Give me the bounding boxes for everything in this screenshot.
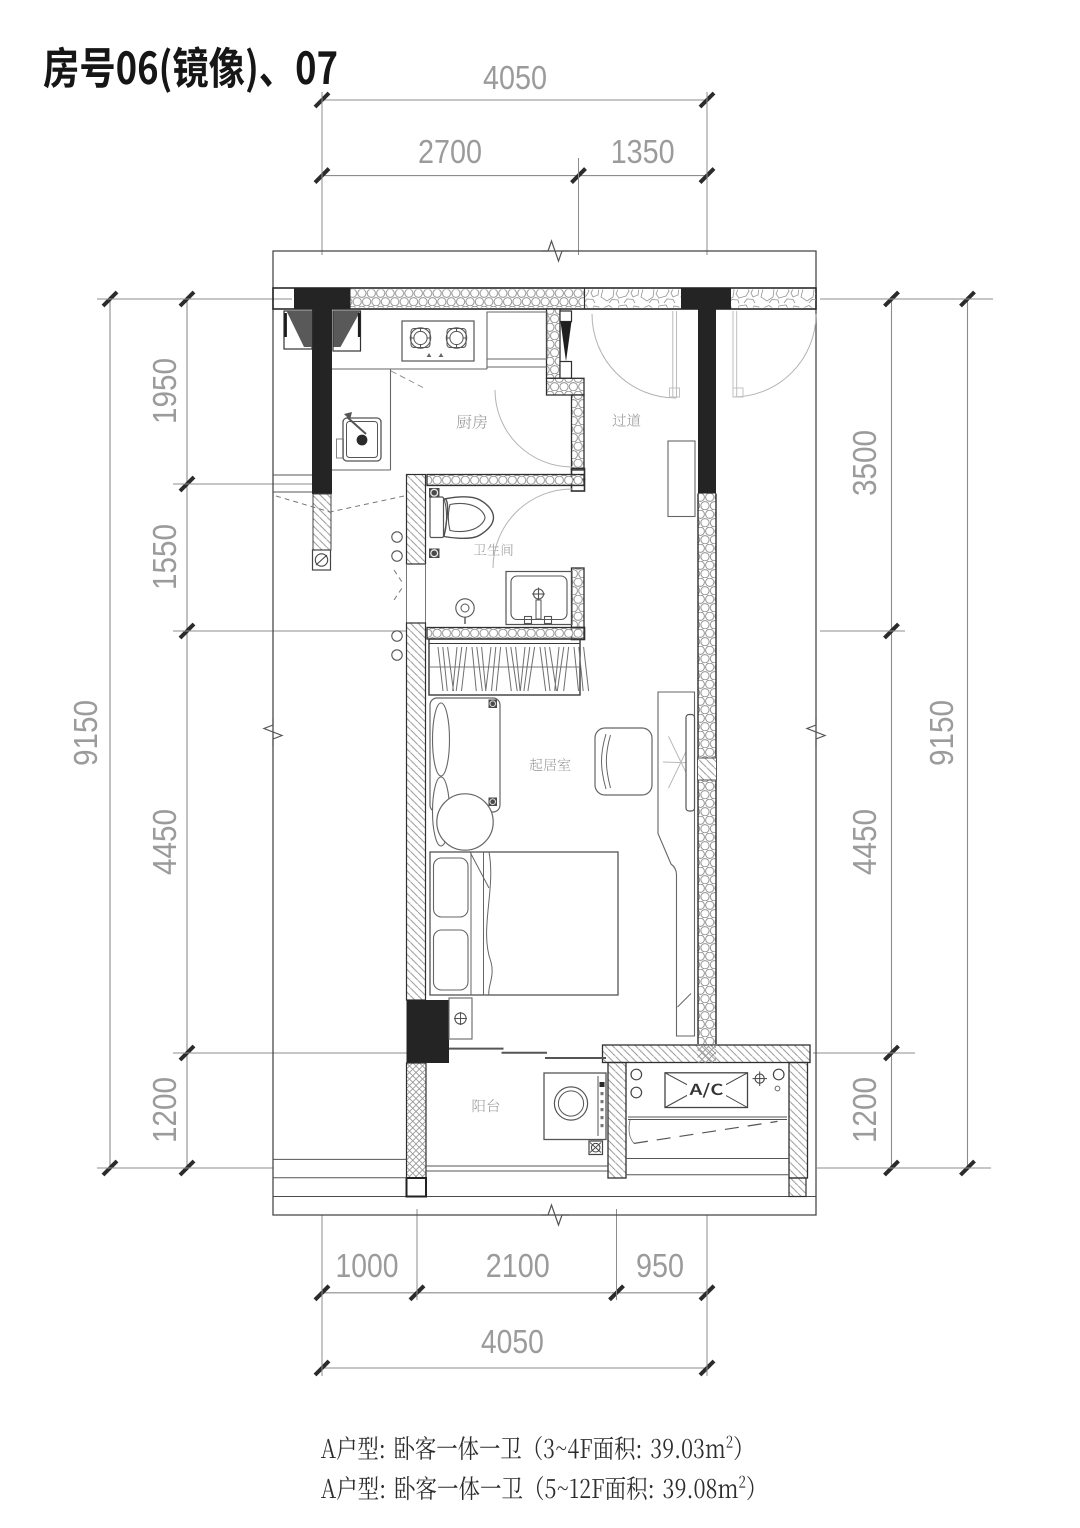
svg-text:1350: 1350	[611, 133, 675, 170]
svg-text:1950: 1950	[146, 358, 183, 424]
svg-text:2700: 2700	[418, 133, 482, 170]
svg-text:1550: 1550	[146, 524, 183, 590]
svg-text:3500: 3500	[846, 430, 883, 496]
svg-text:4050: 4050	[481, 1323, 544, 1360]
svg-text:2100: 2100	[486, 1247, 550, 1284]
svg-text:950: 950	[636, 1247, 684, 1284]
svg-text:1000: 1000	[336, 1247, 399, 1284]
svg-text:4450: 4450	[146, 809, 183, 875]
svg-text:4450: 4450	[846, 809, 883, 875]
svg-text:9150: 9150	[923, 700, 960, 766]
svg-text:1200: 1200	[846, 1077, 883, 1143]
svg-text:9150: 9150	[67, 700, 104, 766]
svg-text:4050: 4050	[483, 59, 547, 96]
svg-text:1200: 1200	[146, 1077, 183, 1143]
